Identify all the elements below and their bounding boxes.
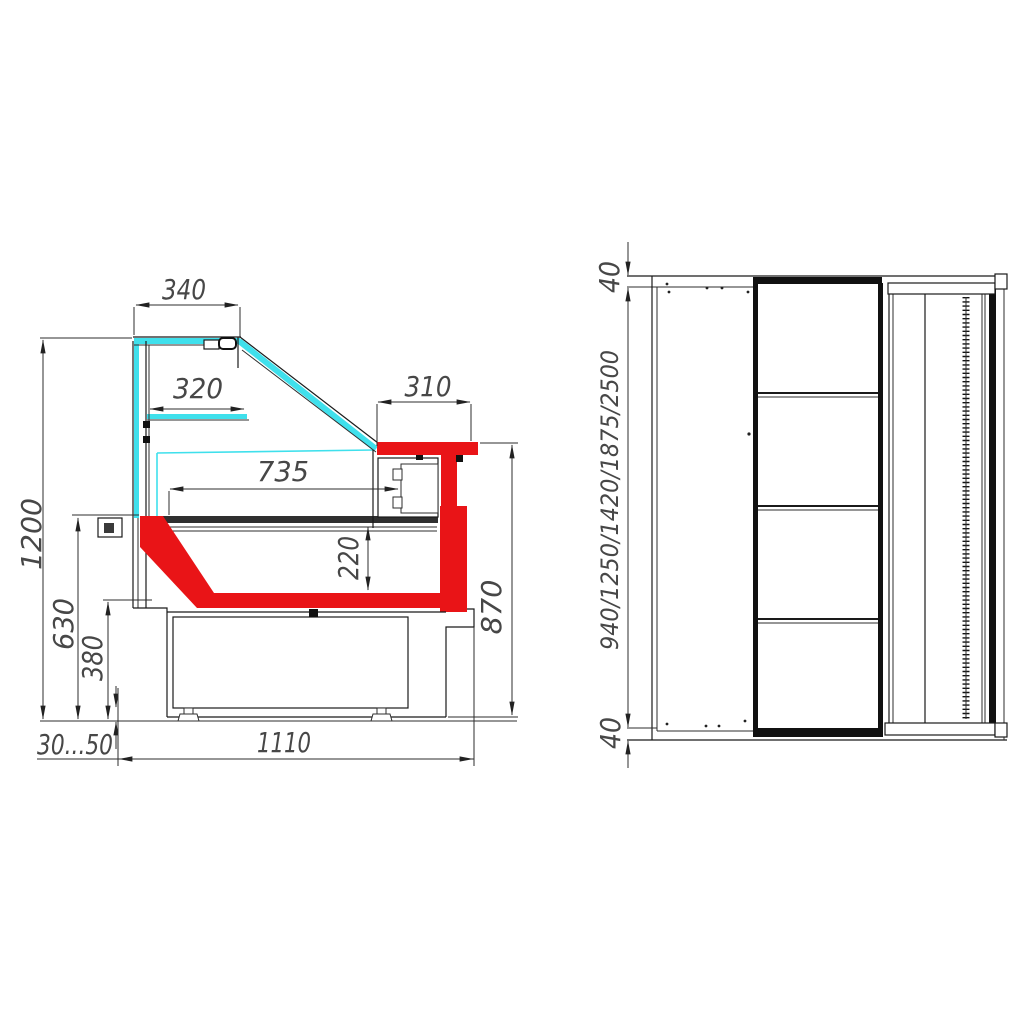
dim-1110: 1110 [257,726,311,759]
machine-compartment-door [173,617,408,708]
front-view-structure [627,274,1007,740]
glass-shelf [147,414,247,419]
fastener-dots [666,283,751,728]
drawing-page: 340 320 310 735 220 1200 630 [0,0,1024,1024]
end-glass-section [885,274,1007,740]
handle-bracket [98,518,122,537]
front-view-dimensions: 40 940/1250/1420/1875/2500 40 [593,242,628,768]
corner-post-top [995,274,1007,289]
dim-top-40: 40 [593,261,626,293]
adjustable-foot [178,708,199,721]
evaporator-inner [401,464,438,513]
corner-post-bottom [995,723,1007,737]
frame-clip [143,436,150,443]
shelf-panel [753,277,883,737]
lamp-icon [219,338,236,349]
dim-bottom-40: 40 [594,717,627,749]
dim-1200: 1200 [15,498,48,570]
bottom-rail [885,723,995,735]
dim-220: 220 [332,536,365,580]
top-rail [888,283,995,294]
lamp-housing [204,340,219,349]
frame-clip [143,421,150,428]
base-cabinet [40,608,517,721]
dim-30-50: 30...50 [37,728,113,761]
dim-310: 310 [405,370,452,403]
dim-320: 320 [173,372,223,405]
dim-length-options: 940/1250/1420/1875/2500 [596,350,624,650]
dim-870: 870 [475,580,508,635]
adjustable-foot [371,708,392,721]
glass-panels [134,338,376,522]
front-glass-pane [134,338,139,518]
sloped-glass-pane [239,341,376,449]
dim-735: 735 [257,455,309,488]
dim-340: 340 [162,273,206,306]
dim-380: 380 [76,635,109,681]
technical-drawing: 340 320 310 735 220 1200 630 [0,0,1024,1024]
front-elevation-view: 40 940/1250/1420/1875/2500 40 [593,242,1007,768]
inner-pane-top-edge [157,450,373,453]
side-section-view: 340 320 310 735 220 1200 630 [15,273,518,766]
